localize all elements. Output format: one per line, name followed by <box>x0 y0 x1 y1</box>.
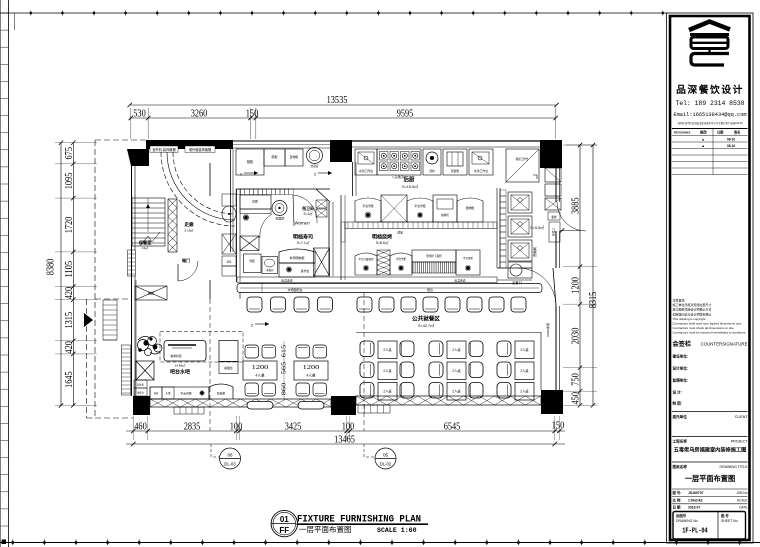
svg-text:平台雪柜: 平台雪柜 <box>180 392 191 396</box>
svg-text:150: 150 <box>246 109 259 120</box>
svg-text:1645: 1645 <box>64 371 75 388</box>
svg-text:1095: 1095 <box>64 173 75 190</box>
svg-text:雪柜: 雪柜 <box>227 260 232 264</box>
svg-text:REVISIONS: REVISIONS <box>674 130 690 134</box>
svg-text:会签栏: 会签栏 <box>673 340 692 348</box>
svg-text:Tel: 189 2314 8538: Tel: 189 2314 8538 <box>675 100 744 107</box>
svg-text:制 图:: 制 图: <box>673 401 682 406</box>
svg-text:675: 675 <box>64 147 75 160</box>
svg-text:置物柜: 置物柜 <box>290 155 299 159</box>
svg-text:COUNTERSIGNATURE: COUNTERSIGNATURE <box>701 342 748 347</box>
svg-text:KONE雨棚: KONE雨棚 <box>546 323 550 337</box>
svg-text:1200: 1200 <box>303 364 320 371</box>
svg-text:2人桌: 2人桌 <box>452 389 461 394</box>
svg-text:室外机-装饰格栅: 室外机-装饰格栅 <box>152 147 176 152</box>
svg-text:100: 100 <box>342 422 355 433</box>
svg-text:1200: 1200 <box>252 364 269 371</box>
svg-text:五毒佬乌房福建室内装修施工图: 五毒佬乌房福建室内装修施工图 <box>674 446 747 454</box>
svg-text:Contractors must check all: Contractors must check all dimensions on… <box>673 326 734 330</box>
svg-text:相柜: 相柜 <box>247 159 254 164</box>
svg-text:Contractors shall work form: Contractors shall work form figured dime… <box>673 322 742 326</box>
svg-text:公共就餐区: 公共就餐区 <box>412 315 440 323</box>
svg-text:DRAWING TITLE: DRAWING TITLE <box>720 465 749 469</box>
svg-text:设计单位:: 设计单位: <box>673 366 689 371</box>
svg-text:咖啡机组: 咖啡机组 <box>170 354 181 358</box>
svg-text:操作台: 操作台 <box>301 269 310 273</box>
svg-text:雪柜: 雪柜 <box>249 259 255 263</box>
svg-text:S=42.7㎡: S=42.7㎡ <box>418 323 434 328</box>
svg-text:Email:1665138434@qq.com: Email:1665138434@qq.com <box>673 112 746 118</box>
svg-text:1:60@A3: 1:60@A3 <box>688 499 703 503</box>
svg-text:洗杯: 洗杯 <box>154 391 159 395</box>
svg-text:1F-PL-04: 1F-PL-04 <box>682 528 708 536</box>
svg-text:S=5.5㎡: S=5.5㎡ <box>530 225 544 230</box>
svg-text:如有疑问请与设计师联系确认: 如有疑问请与设计师联系确认 <box>673 311 712 316</box>
svg-text:储物柜: 储物柜 <box>466 206 475 210</box>
svg-text:图 号: 图 号 <box>721 513 729 518</box>
svg-text:13535: 13535 <box>327 95 348 106</box>
svg-text:2人桌: 2人桌 <box>383 368 392 373</box>
svg-text:Women: Women <box>294 221 310 226</box>
svg-text:平台雪柜: 平台雪柜 <box>414 204 425 208</box>
svg-text:平台雪柜: 平台雪柜 <box>463 256 474 260</box>
svg-text:3885: 3885 <box>571 198 582 215</box>
svg-text:保鲜工作台: 保鲜工作台 <box>516 157 529 161</box>
svg-text:图 号:: 图 号: <box>673 490 682 495</box>
svg-text:建设单位:: 建设单位: <box>672 354 689 359</box>
svg-text:420: 420 <box>64 287 75 300</box>
svg-text:1315: 1315 <box>64 312 75 329</box>
svg-text:注意事项:: 注意事项: <box>673 298 686 303</box>
svg-text:3260: 3260 <box>191 109 208 120</box>
svg-text:06: 06 <box>227 453 233 458</box>
svg-text:高柜: 高柜 <box>252 199 258 204</box>
svg-text:日 期:: 日 期: <box>673 505 682 510</box>
svg-text:Contractors must be reporte: Contractors must be reported immediately… <box>673 331 746 335</box>
svg-text:监理单位:: 监理单位: <box>673 378 689 383</box>
svg-text:调宝: 调宝 <box>397 231 403 235</box>
svg-text:13㎡: 13㎡ <box>142 245 148 250</box>
svg-text:委托单位: 委托单位 <box>673 414 688 419</box>
svg-text:水槽: 水槽 <box>166 391 171 395</box>
svg-text:吧台: 吧台 <box>427 287 433 292</box>
svg-text:咖喱机: 咖喱机 <box>441 213 449 217</box>
svg-text:设 计:: 设 计: <box>673 390 682 395</box>
svg-text:2030: 2030 <box>571 328 582 345</box>
svg-text:4人桌: 4人桌 <box>306 373 316 378</box>
svg-text:JOB No: JOB No <box>736 491 747 495</box>
svg-text:DRAWING No.: DRAWING No. <box>676 519 699 523</box>
svg-text:DL-03: DL-03 <box>224 462 236 467</box>
svg-text:5.19㎡: 5.19㎡ <box>185 228 194 233</box>
svg-text:01: 01 <box>280 515 289 524</box>
svg-text:出餐口: 出餐口 <box>512 280 522 285</box>
svg-text:出菜走道: 出菜走道 <box>454 279 465 283</box>
svg-text:施工图纸须经设计师确认方可: 施工图纸须经设计师确认方可 <box>673 307 712 312</box>
svg-text:比 例:: 比 例: <box>673 498 682 503</box>
svg-text:4人桌: 4人桌 <box>255 373 265 378</box>
svg-text:2人桌: 2人桌 <box>520 347 529 352</box>
svg-text:鞋柜: 鞋柜 <box>148 291 155 296</box>
svg-text:洗菜盆: 洗菜盆 <box>311 164 319 168</box>
svg-text:530: 530 <box>133 109 146 120</box>
svg-text:3425: 3425 <box>285 422 302 433</box>
svg-text:1105: 1105 <box>64 261 75 278</box>
svg-text:一层平面布置图: 一层平面布置图 <box>685 474 735 483</box>
svg-text:工程名称: 工程名称 <box>673 439 688 444</box>
svg-text:2人桌: 2人桌 <box>520 368 529 373</box>
svg-text:蒸饭柜: 蒸饭柜 <box>451 169 460 173</box>
svg-text:460: 460 <box>134 422 147 433</box>
svg-text:150: 150 <box>552 421 565 432</box>
svg-text:寿司明档柜: 寿司明档柜 <box>289 255 304 260</box>
svg-text:施工单位须核对现场全部尺寸: 施工单位须核对现场全部尺寸 <box>673 302 712 307</box>
svg-text:14.85㎡: 14.85㎡ <box>175 363 186 368</box>
svg-text:FF: FF <box>279 526 289 535</box>
svg-text:碗柜: 碗柜 <box>271 154 277 159</box>
svg-text:1200: 1200 <box>571 277 582 294</box>
svg-text:JS160707: JS160707 <box>688 491 704 495</box>
svg-text:保管室: 保管室 <box>138 239 152 246</box>
svg-text:This drawing is copyright: This drawing is copyright <box>673 317 706 321</box>
svg-text:450: 450 <box>571 392 582 405</box>
svg-text:PROJECT: PROJECT <box>731 440 749 444</box>
svg-text:饮料柜: 饮料柜 <box>217 392 226 396</box>
svg-text:05: 05 <box>383 453 389 458</box>
svg-text:平台冷藏雪柜: 平台冷藏雪柜 <box>358 257 374 261</box>
svg-text:后厨: 后厨 <box>404 176 415 184</box>
svg-text:墙外做装饰格栅: 墙外做装饰格栅 <box>189 147 212 152</box>
svg-text:S=1㎡: S=1㎡ <box>304 211 314 216</box>
svg-text:▲: ▲ <box>701 138 705 142</box>
svg-text:8315: 8315 <box>588 292 599 309</box>
svg-text:DATE: DATE <box>739 506 747 510</box>
svg-text:修改: 修改 <box>699 130 707 135</box>
svg-text:13465: 13465 <box>334 435 355 446</box>
svg-text:餐梯: 餐梯 <box>551 215 557 219</box>
svg-text:2人桌: 2人桌 <box>383 347 392 352</box>
svg-text:S=8.5㎡: S=8.5㎡ <box>376 240 389 245</box>
svg-text:2835: 2835 <box>184 422 201 433</box>
svg-text:420: 420 <box>64 341 75 354</box>
svg-text:平台雪柜: 平台雪柜 <box>396 257 407 261</box>
svg-text:出图号: 出图号 <box>676 513 687 518</box>
svg-text:8380: 8380 <box>46 259 57 276</box>
svg-text:2人桌: 2人桌 <box>452 347 461 352</box>
svg-text:吧台水吧: 吧台水吧 <box>170 369 190 376</box>
svg-text:1720: 1720 <box>64 217 75 234</box>
svg-text:2人桌: 2人桌 <box>520 389 529 394</box>
svg-text:图纸名称: 图纸名称 <box>673 464 688 469</box>
svg-text:9595: 9595 <box>397 109 414 120</box>
svg-text:残卫间: 残卫间 <box>301 206 314 211</box>
svg-text:08-10: 08-10 <box>727 144 735 148</box>
svg-text:2人桌: 2人桌 <box>452 368 461 373</box>
svg-text:SCALE 1:60: SCALE 1:60 <box>377 527 417 534</box>
svg-text:签名: 签名 <box>733 130 740 135</box>
svg-text:2016.07: 2016.07 <box>688 506 700 510</box>
svg-text:▲: ▲ <box>701 144 705 148</box>
svg-text:S=15.5㎡: S=15.5㎡ <box>402 184 418 189</box>
svg-text:传菜口: 传菜口 <box>552 228 556 236</box>
svg-text:SHEET No.: SHEET No. <box>721 519 739 523</box>
svg-text:日期: 日期 <box>717 130 724 135</box>
svg-text:08-10: 08-10 <box>727 138 735 142</box>
svg-text:一层平面布置图: 一层平面布置图 <box>299 524 352 534</box>
svg-text:2人桌: 2人桌 <box>383 389 392 394</box>
svg-text:平台雪柜: 平台雪柜 <box>362 204 373 208</box>
svg-text:深圳市龙华区民治街道北站商务中心写字楼艺术产业园A-B-49: 深圳市龙华区民治街道北站商务中心写字楼艺术产业园A-B-49 <box>678 121 743 125</box>
svg-text:750: 750 <box>571 373 582 386</box>
svg-text:100: 100 <box>230 422 243 433</box>
svg-text:FIXTURE FURNISHING PLAN: FIXTURE FURNISHING PLAN <box>297 514 421 525</box>
svg-text:明档烧烤: 明档烧烤 <box>372 234 392 241</box>
svg-text:SCALE: SCALE <box>737 499 747 503</box>
svg-text:CLIENT: CLIENT <box>735 415 749 419</box>
svg-text:水池工作台: 水池工作台 <box>474 169 488 173</box>
svg-text:6545: 6545 <box>444 422 461 433</box>
svg-text:走廊: 走廊 <box>183 221 194 228</box>
svg-text:DL-02: DL-02 <box>380 462 392 467</box>
svg-text:烧烤炉下面柜: 烧烤炉下面柜 <box>426 254 442 258</box>
svg-text:水池工作台: 水池工作台 <box>359 169 373 173</box>
svg-text:备餐台: 备餐台 <box>224 366 233 370</box>
svg-text:出菜走道: 出菜走道 <box>281 279 292 283</box>
svg-text:煮面炉: 煮面炉 <box>266 268 274 272</box>
svg-text:木饰面吧台: 木饰面吧台 <box>287 287 302 292</box>
svg-text:汤炉: 汤炉 <box>429 169 435 173</box>
svg-text:煮面炉: 煮面炉 <box>275 216 284 221</box>
svg-text:明档寿司: 明档寿司 <box>293 234 313 241</box>
svg-text:暗门: 暗门 <box>182 257 190 263</box>
svg-text:S=7.1㎡: S=7.1㎡ <box>297 240 310 245</box>
svg-text:洗碗间: 洗碗间 <box>532 246 537 257</box>
svg-text:品深餐饮设计: 品深餐饮设计 <box>676 83 744 96</box>
